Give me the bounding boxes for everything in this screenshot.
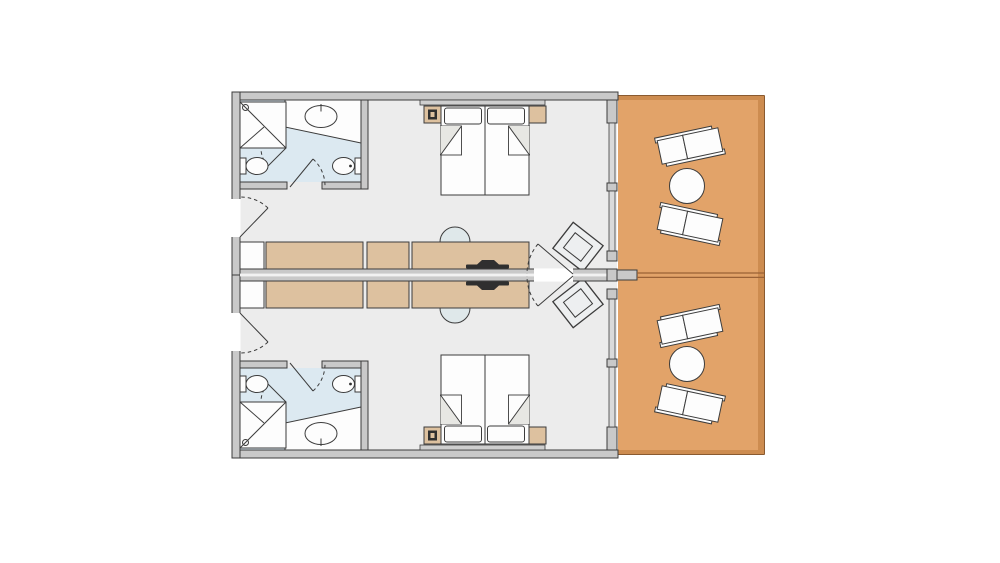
door-jamb: [607, 251, 617, 261]
counter-section: [367, 242, 409, 269]
pillow: [445, 108, 482, 124]
round-table: [670, 169, 705, 204]
terrace-edge-strip: [758, 96, 764, 275]
toilet-cistern: [355, 158, 361, 174]
floor-plan: [0, 0, 1000, 563]
tv-panel: [466, 265, 509, 269]
wall-cross: [607, 269, 617, 281]
wardrobe-counter: [266, 242, 363, 269]
bidet: [240, 158, 268, 175]
headboard: [420, 100, 545, 105]
pillow: [488, 108, 525, 124]
unit-a: [232, 92, 765, 275]
lamp-icon-center: [431, 112, 435, 117]
toilet-flush-icon: [349, 165, 352, 168]
exterior-wall-top: [232, 92, 618, 100]
bidet-bowl: [246, 158, 268, 175]
bathroom-wall: [361, 100, 368, 189]
exterior-wall-left: [232, 92, 240, 275]
terrace-wall-stub: [617, 270, 637, 280]
minibar: [240, 242, 264, 269]
toilet: [333, 158, 362, 175]
unit-b: [232, 275, 765, 458]
bathroom-wall: [240, 182, 287, 189]
folded-blanket-corner: [441, 126, 462, 155]
window: [609, 191, 615, 251]
wall-pier: [607, 100, 617, 123]
window: [609, 123, 615, 183]
terrace-edge-strip: [618, 96, 764, 100]
window-mullion: [607, 183, 617, 191]
folded-blanket-corner: [509, 126, 530, 155]
door-opening: [232, 199, 241, 237]
bidet-mount: [240, 158, 246, 174]
nightstand: [529, 106, 546, 123]
connecting-door-opening: [534, 268, 573, 281]
floor-plan-canvas: [0, 0, 1000, 563]
